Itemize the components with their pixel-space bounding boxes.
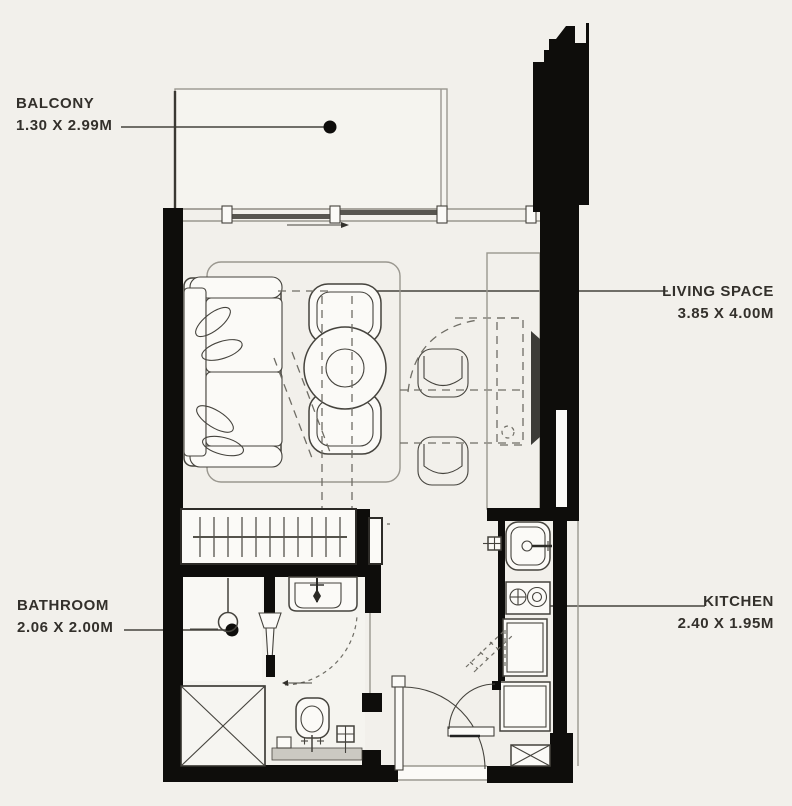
bathroom-label-name: BATHROOM <box>17 595 113 617</box>
bathroom-curb <box>272 748 362 760</box>
service-shaft-left <box>181 686 265 766</box>
cabinet-dashed-outline <box>497 318 523 445</box>
cistern-box <box>277 737 291 748</box>
sliding-panel-2 <box>337 210 437 215</box>
sofa-seat-cushion-2 <box>206 372 282 446</box>
living-space-label-name: LIVING SPACE <box>662 281 774 303</box>
sofa <box>184 277 282 467</box>
door-jamb <box>369 518 382 564</box>
balcony-floor <box>175 89 447 209</box>
living-space-label-dims: 3.85 X 4.00M <box>662 303 774 325</box>
balcony-label-name: BALCONY <box>16 93 112 115</box>
kitchen-label-name: KITCHEN <box>678 591 774 613</box>
bathroom-label-dims: 2.06 X 2.00M <box>17 617 113 639</box>
sliding-panel-1 <box>232 214 331 219</box>
floor-plan-drawing <box>0 0 792 806</box>
bathroom-label: BATHROOM 2.06 X 2.00M <box>17 595 113 639</box>
living-space-label: LIVING SPACE 3.85 X 4.00M <box>662 281 774 325</box>
left-wall <box>163 208 183 782</box>
bottom-wall-right <box>487 766 573 783</box>
kitchen-cabinet-1 <box>503 619 547 676</box>
kitchen-label-dims: 2.40 X 1.95M <box>678 613 774 635</box>
wall-window-slot <box>556 410 567 507</box>
service-shaft-right <box>511 745 550 766</box>
dining-chair-2 <box>418 437 468 485</box>
tv <box>531 331 540 445</box>
kitchen-sink <box>506 522 552 570</box>
coffee-table <box>304 327 386 409</box>
bottom-wall-left <box>163 765 398 782</box>
sofa-backrest <box>184 288 206 456</box>
vanity-sink <box>289 577 357 611</box>
power-outlet-icon <box>483 537 501 550</box>
balcony-label-dims: 1.30 X 2.99M <box>16 115 112 137</box>
bathroom-right-wall <box>365 577 381 613</box>
closet-door-swing <box>449 684 495 729</box>
entry-threshold <box>398 766 487 781</box>
stove <box>506 582 550 614</box>
floor-plan: BALCONY 1.30 X 2.99M LIVING SPACE 3.85 X… <box>0 0 792 806</box>
kitchen-cabinet-2 <box>500 682 550 731</box>
balcony-leader-dot <box>324 121 337 134</box>
sliding-door-window <box>183 206 540 228</box>
balcony-label: BALCONY 1.30 X 2.99M <box>16 93 112 137</box>
cabinet-knob <box>502 426 514 438</box>
kitchen-label: KITCHEN 2.40 X 1.95M <box>678 591 774 635</box>
closet-door <box>448 681 501 736</box>
wardrobe <box>181 509 382 564</box>
